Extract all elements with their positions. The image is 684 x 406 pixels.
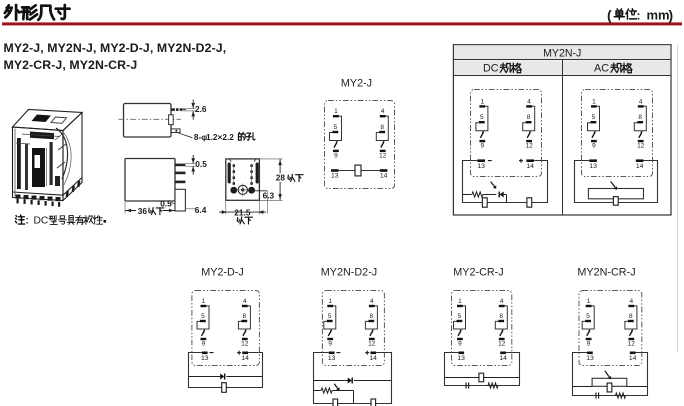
svg-text:2.6: 2.6 [195, 104, 207, 114]
svg-text:(: ( [607, 7, 612, 23]
svg-text:4: 4 [500, 298, 504, 305]
svg-text:MY2N-CR-J: MY2N-CR-J [577, 267, 635, 279]
svg-text:MY2N-D2-J: MY2N-D2-J [321, 267, 377, 279]
svg-text:14: 14 [241, 355, 249, 362]
svg-text:MY2-J, MY2N-J, MY2-D-J, MY2N-D: MY2-J, MY2N-J, MY2-D-J, MY2N-D2-J, [4, 41, 227, 55]
svg-text:12: 12 [628, 341, 636, 348]
svg-text:14: 14 [636, 163, 644, 170]
svg-text:5: 5 [592, 114, 596, 121]
svg-text:9: 9 [328, 341, 332, 348]
svg-text:13: 13 [331, 173, 339, 180]
svg-text:5: 5 [328, 313, 332, 320]
svg-text:9: 9 [587, 341, 591, 348]
svg-text:12: 12 [379, 152, 387, 159]
svg-text:5: 5 [480, 114, 484, 121]
svg-text:6.3: 6.3 [263, 191, 275, 201]
svg-text:13: 13 [586, 355, 594, 362]
svg-text:0.5: 0.5 [195, 159, 207, 169]
svg-text:4: 4 [629, 298, 633, 305]
svg-text:8: 8 [242, 313, 246, 320]
svg-text:12: 12 [637, 143, 645, 150]
svg-text:5: 5 [458, 313, 462, 320]
svg-text:1: 1 [480, 98, 484, 105]
svg-text:9: 9 [480, 143, 484, 150]
svg-text:8: 8 [380, 124, 384, 131]
svg-text:DC: DC [483, 63, 499, 75]
svg-text:4: 4 [243, 298, 247, 305]
svg-text:6.4: 6.4 [195, 205, 207, 215]
svg-text:AC: AC [594, 63, 609, 75]
svg-text:14: 14 [369, 355, 377, 362]
svg-text:DC: DC [34, 216, 49, 227]
svg-text:13: 13 [477, 163, 485, 170]
svg-text:5: 5 [201, 313, 205, 320]
svg-text:12: 12 [241, 341, 249, 348]
svg-text:13: 13 [201, 355, 209, 362]
svg-text:9: 9 [458, 341, 462, 348]
svg-text:12: 12 [368, 341, 376, 348]
svg-text:13: 13 [589, 163, 597, 170]
svg-text:14: 14 [380, 173, 388, 180]
svg-text:): ) [669, 7, 674, 23]
svg-text::: : [637, 9, 641, 23]
svg-text:1: 1 [458, 298, 462, 305]
svg-text:9: 9 [202, 341, 206, 348]
svg-text:8: 8 [369, 313, 373, 320]
svg-text:21.5: 21.5 [234, 207, 251, 217]
svg-text::: : [26, 216, 29, 227]
svg-text:MY2-CR-J: MY2-CR-J [453, 267, 503, 279]
svg-text:4: 4 [639, 98, 643, 105]
svg-text:14: 14 [526, 163, 534, 170]
svg-text:1.2×2.2: 1.2×2.2 [206, 132, 234, 142]
svg-text:5: 5 [334, 124, 338, 131]
svg-text:1: 1 [592, 98, 596, 105]
svg-text:12: 12 [525, 143, 533, 150]
svg-text:MY2N-J: MY2N-J [543, 47, 581, 59]
svg-text:1: 1 [328, 298, 332, 305]
svg-text:5: 5 [586, 313, 590, 320]
svg-text:1: 1 [334, 108, 338, 115]
svg-text:MY2-CR-J, MY2N-CR-J: MY2-CR-J, MY2N-CR-J [4, 58, 138, 72]
svg-text:MY2-J: MY2-J [341, 78, 372, 90]
svg-text:4: 4 [370, 298, 374, 305]
svg-text:12: 12 [498, 341, 506, 348]
svg-text:14: 14 [499, 355, 507, 362]
svg-text:4: 4 [527, 98, 531, 105]
svg-text:8: 8 [638, 114, 642, 121]
svg-text:8: 8 [527, 114, 531, 121]
svg-text:mm: mm [647, 8, 670, 23]
svg-text:9: 9 [334, 152, 338, 159]
svg-text:36: 36 [138, 206, 148, 216]
svg-text:28: 28 [276, 173, 286, 183]
svg-text:14: 14 [629, 355, 637, 362]
svg-text:4: 4 [381, 108, 385, 115]
svg-text:8: 8 [629, 313, 633, 320]
svg-text:1: 1 [587, 298, 591, 305]
svg-text:8: 8 [499, 313, 503, 320]
svg-text:9: 9 [592, 143, 596, 150]
svg-text:13: 13 [328, 355, 336, 362]
svg-text:1: 1 [202, 298, 206, 305]
svg-text:13: 13 [457, 355, 465, 362]
svg-text:MY2-D-J: MY2-D-J [201, 267, 244, 279]
